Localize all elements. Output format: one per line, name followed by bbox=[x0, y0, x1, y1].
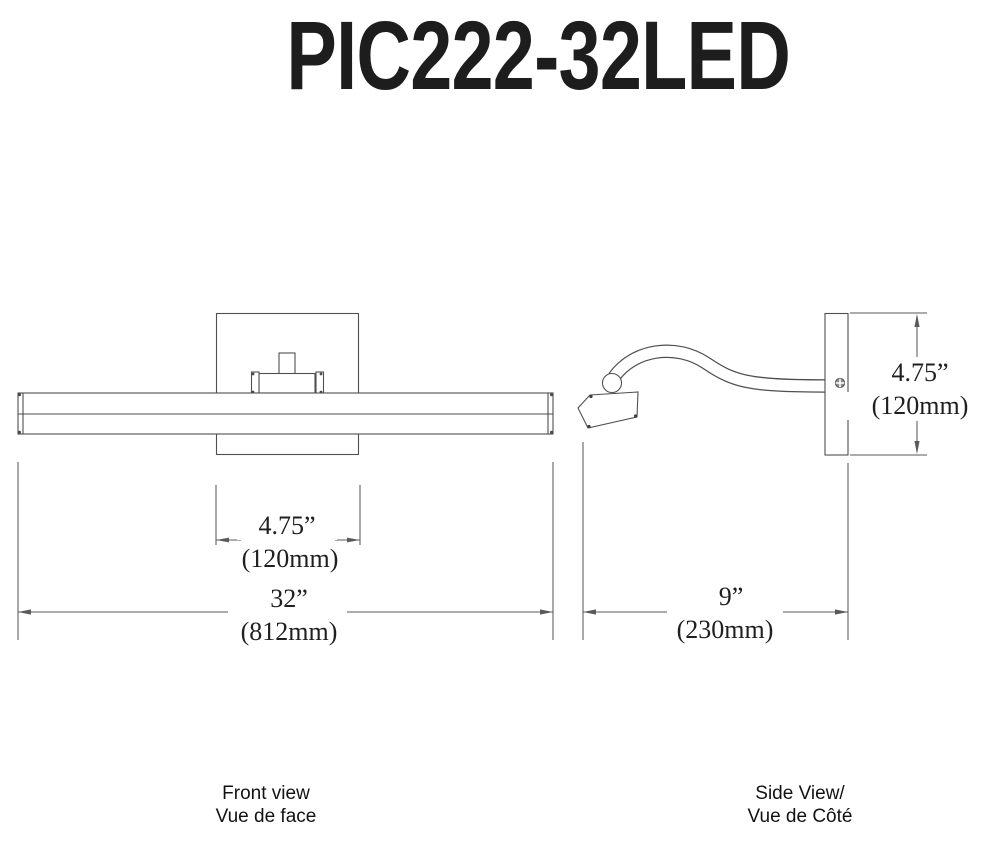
fixture-width-metric: (812mm) bbox=[214, 618, 364, 646]
technical-drawing bbox=[0, 0, 990, 844]
backplate-width-metric: (120mm) bbox=[215, 545, 365, 573]
side-view-caption: Side View/ Vue de Côté bbox=[700, 782, 900, 828]
front-view-caption-fr: Vue de face bbox=[166, 805, 366, 828]
backplate-width-inches: 4.75” bbox=[237, 512, 337, 540]
led-bar bbox=[18, 393, 553, 434]
extension-depth-metric: (230mm) bbox=[650, 616, 800, 644]
lamp-head bbox=[578, 392, 638, 428]
backplate-height-inches: 4.75” bbox=[860, 359, 980, 387]
extension-depth-inches: 9” bbox=[681, 583, 781, 611]
product-code-title: PIC222-32LED bbox=[286, 6, 693, 106]
support-arm bbox=[614, 351, 826, 386]
dimension-annotations bbox=[18, 313, 927, 640]
mount-clamp-right bbox=[316, 372, 324, 394]
fixture-width-inches: 32” bbox=[239, 585, 339, 613]
side-view-drawing bbox=[578, 314, 848, 456]
front-view-caption-en: Front view bbox=[166, 782, 366, 805]
ball-joint bbox=[603, 374, 622, 393]
mount-bracket bbox=[259, 374, 315, 394]
spec-sheet-page: PIC222-32LED 4.75” (120mm) 32” (812mm) 9… bbox=[0, 0, 990, 844]
side-view-caption-en: Side View/ bbox=[700, 782, 900, 805]
screw-head bbox=[835, 378, 844, 387]
side-view-caption-fr: Vue de Côté bbox=[700, 805, 900, 828]
front-view-caption: Front view Vue de face bbox=[166, 782, 366, 828]
backplate-height-metric: (120mm) bbox=[845, 392, 990, 420]
front-view-drawing bbox=[18, 314, 553, 455]
mount-stem bbox=[279, 353, 295, 374]
